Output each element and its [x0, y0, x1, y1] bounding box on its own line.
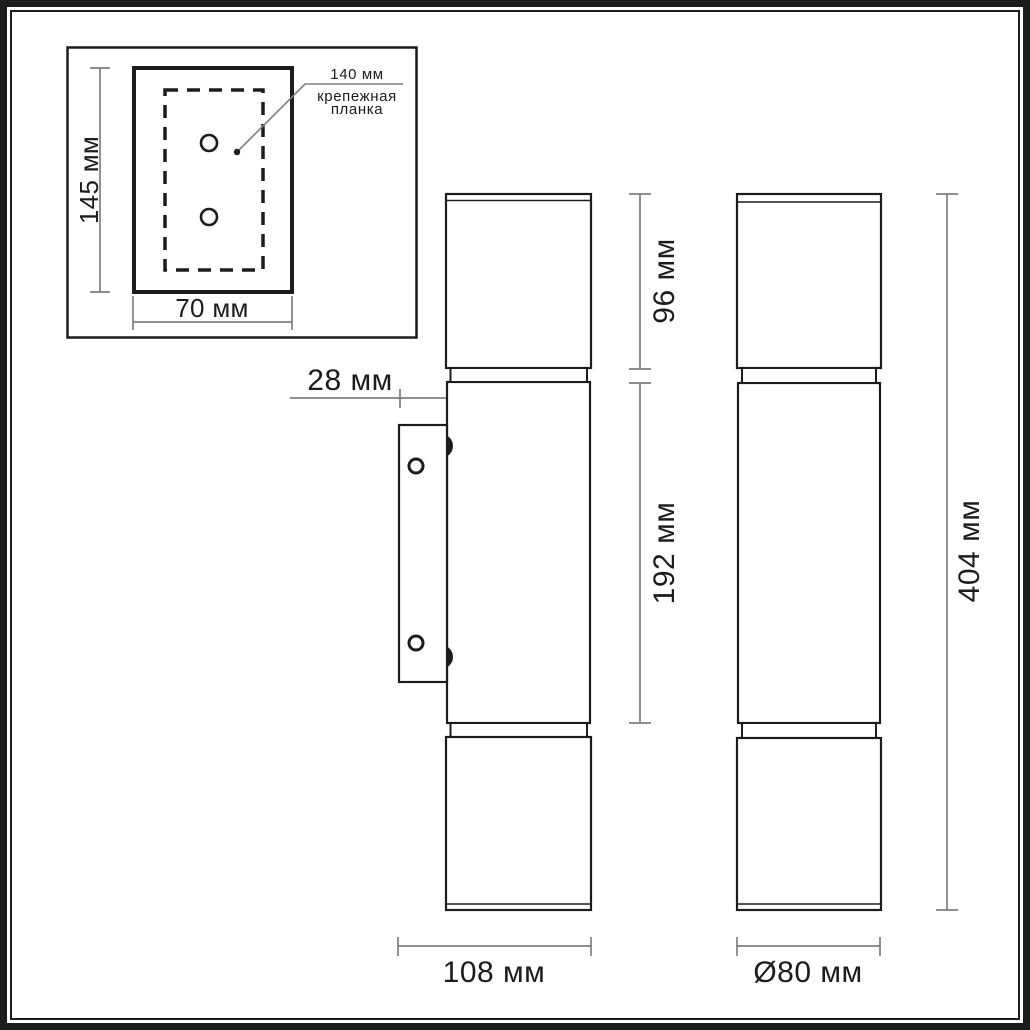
plate-height-label: 145 мм — [74, 136, 104, 224]
side-top-shade — [446, 194, 591, 368]
side-body — [447, 382, 590, 723]
bracket-depth-label: 28 мм — [307, 364, 392, 397]
front-view: 404 мм Ø80 мм — [737, 194, 986, 989]
dimension-diameter: Ø80 мм — [737, 937, 880, 989]
back-plate — [134, 68, 292, 292]
dimension-bracket-depth: 28 мм — [290, 364, 446, 408]
side-bottom-shade — [446, 737, 591, 910]
side-top-band — [451, 368, 588, 382]
mounting-plate-inset: 145 мм 70 мм 140 мм крепежная планка — [68, 48, 417, 338]
middle-section-label: 192 мм — [648, 502, 681, 605]
dimension-middle-section: 192 мм — [629, 383, 681, 723]
dimension-total-height: 404 мм — [936, 194, 986, 910]
front-bottom-shade — [737, 738, 881, 910]
plate-width-label: 70 мм — [175, 293, 248, 323]
total-height-label: 404 мм — [953, 500, 986, 603]
front-top-band — [742, 368, 876, 383]
dimension-overall-width: 108 мм — [398, 937, 591, 989]
drawing-svg: 145 мм 70 мм 140 мм крепежная планка — [0, 0, 1030, 1030]
plate-hole-top — [201, 135, 217, 151]
front-bottom-band — [742, 723, 876, 738]
plate-hole-bottom — [201, 209, 217, 225]
bar-name-line2: планка — [331, 101, 383, 118]
side-view: 28 мм 96 мм 192 мм 108 мм — [290, 194, 681, 989]
front-top-shade — [737, 194, 881, 368]
dimension-plate-height: 145 мм — [74, 68, 110, 292]
side-bottom-band — [451, 723, 588, 737]
bracket-hole-bottom — [409, 636, 423, 650]
top-section-label: 96 мм — [648, 238, 681, 323]
dimension-plate-width: 70 мм — [133, 293, 292, 330]
luminaire-dimension-drawing: 145 мм 70 мм 140 мм крепежная планка — [0, 0, 1030, 1030]
bar-length-label: 140 мм — [330, 66, 383, 83]
front-body — [738, 383, 880, 723]
dimension-top-section: 96 мм — [629, 194, 681, 369]
diameter-label: Ø80 мм — [753, 956, 862, 989]
leader-dot — [234, 149, 240, 155]
bracket-hole-top — [409, 459, 423, 473]
overall-width-label: 108 мм — [443, 956, 546, 989]
